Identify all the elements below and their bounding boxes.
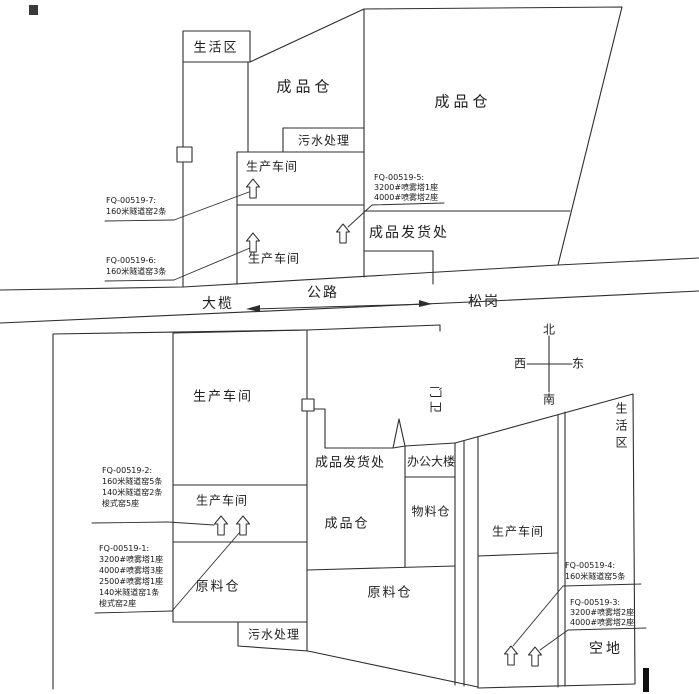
annotation-fq6-title: FQ-00519-6: bbox=[106, 255, 166, 266]
annotation-fq4: FQ-00519-4: 160米隧道窑5条 bbox=[565, 560, 625, 582]
annotation-fq3-line-1: 3200#喷雾塔2座 bbox=[570, 608, 634, 618]
label-upper-workshop-1: 生产车间 bbox=[246, 158, 298, 175]
label-upper-finished-goods-left: 成品仓 bbox=[276, 76, 333, 97]
label-lower-living-area: 生活区 bbox=[613, 402, 630, 453]
road-arrowhead-right bbox=[419, 300, 432, 307]
annotation-fq4-title: FQ-00519-4: bbox=[565, 560, 625, 571]
annotation-fq1-line-1: 3200#喷雾塔1座 bbox=[99, 554, 163, 565]
annotation-fq1-line-5: 梭式窑2座 bbox=[99, 598, 163, 609]
annotation-fq1-line-2: 4000#喷雾塔3座 bbox=[99, 565, 163, 576]
fq6-underline bbox=[105, 280, 174, 281]
label-lower-sewage-treatment: 污水处理 bbox=[248, 626, 300, 643]
annotation-fq2-line-2: 140米隧道窑2条 bbox=[102, 487, 162, 498]
lower-shipping-step bbox=[314, 409, 325, 448]
annotation-fq2-title: FQ-00519-2: bbox=[102, 465, 162, 476]
annotation-fq3-line-2: 4000#喷雾塔2座 bbox=[570, 618, 634, 628]
lower-top-boundary bbox=[53, 325, 440, 334]
annotation-fq3-title: FQ-00519-3: bbox=[570, 598, 634, 608]
arrow-marker-upper-workshop-1 bbox=[247, 179, 260, 198]
road-arrowhead-left bbox=[246, 305, 260, 312]
label-lower-material-warehouse: 物料仓 bbox=[411, 503, 450, 520]
label-road-right-destination: 松岗 bbox=[468, 291, 500, 311]
label-upper-living-area: 生活区 bbox=[193, 37, 238, 56]
annotation-fq3: FQ-00519-3: 3200#喷雾塔2座 4000#喷雾塔2座 bbox=[570, 598, 634, 628]
lower-bottom-slant-right bbox=[478, 684, 635, 688]
lower-gate-triangle bbox=[393, 419, 405, 448]
arrow-marker-bottom-right-1 bbox=[505, 646, 518, 665]
upper-site-outline bbox=[183, 7, 622, 287]
lower-right-boundary bbox=[633, 394, 635, 684]
arrow-marker-lower-workshop-1 bbox=[215, 516, 228, 535]
annotation-fq7: FQ-00519-7: 160米隧道窑2条 bbox=[106, 195, 166, 217]
label-upper-shipping-area: 成品发货处 bbox=[369, 222, 449, 242]
label-compass-north: 北 bbox=[543, 321, 555, 338]
road-top-edge bbox=[0, 258, 699, 290]
fq6-leader bbox=[174, 248, 250, 280]
label-lower-finished-goods: 成品仓 bbox=[324, 513, 369, 532]
road-bottom-edge bbox=[0, 291, 699, 323]
lower-right-workshop-divider bbox=[478, 553, 558, 556]
fq3-leader bbox=[540, 630, 568, 650]
lower-office-top bbox=[405, 443, 455, 446]
label-road-left-destination: 大榄 bbox=[202, 293, 234, 313]
annotation-fq7-line: 160米隧道窑2条 bbox=[106, 206, 166, 217]
fq1-leader bbox=[172, 532, 240, 611]
annotation-fq5-title: FQ-00519-5: bbox=[374, 173, 438, 183]
annotation-fq5-line-2: 4000#喷雾塔2座 bbox=[374, 193, 438, 203]
annotation-fq1-title: FQ-00519-1: bbox=[99, 543, 163, 554]
fq7-leader bbox=[174, 192, 249, 220]
label-gate-house: 门卫 bbox=[428, 386, 445, 416]
annotation-fq4-line: 160米隧道窑5条 bbox=[565, 571, 625, 582]
fq1-underline bbox=[95, 611, 172, 613]
arrow-marker-lower-workshop-2 bbox=[237, 516, 250, 535]
annotation-fq1: FQ-00519-1: 3200#喷雾塔1座 4000#喷雾塔3座 2500#喷… bbox=[99, 543, 163, 609]
label-lower-workshop-right: 生产车间 bbox=[492, 523, 544, 540]
label-compass-south: 南 bbox=[543, 391, 555, 408]
label-upper-workshop-2: 生产车间 bbox=[248, 250, 300, 267]
lower-warehouse-bottom bbox=[307, 566, 455, 570]
lower-wall-notch bbox=[302, 399, 314, 411]
annotation-fq5: FQ-00519-5: 3200#喷雾塔1座 4000#喷雾塔2座 bbox=[374, 173, 438, 203]
label-empty-lot: 空地 bbox=[589, 638, 623, 658]
label-lower-shipping-area: 成品发货处 bbox=[315, 452, 385, 471]
label-lower-workshop-main: 生产车间 bbox=[193, 386, 253, 405]
arrow-marker-bottom-right-2 bbox=[529, 647, 542, 666]
scan-artifact-bottom-right bbox=[643, 668, 649, 692]
label-lower-workshop-small: 生产车间 bbox=[196, 492, 248, 509]
annotation-fq2-line-3: 梭式窑5座 bbox=[102, 498, 162, 509]
annotation-fq6-line: 160米隧道窑3条 bbox=[106, 266, 166, 277]
annotation-fq5-line-1: 3200#喷雾塔1座 bbox=[374, 183, 438, 193]
annotation-fq1-line-4: 140米隧道窑1条 bbox=[99, 587, 163, 598]
label-lower-office-building: 办公大楼 bbox=[407, 453, 455, 470]
scan-artifact-top-left bbox=[29, 5, 38, 15]
lower-bottom-slant-mid bbox=[308, 651, 478, 687]
annotation-fq2: FQ-00519-2: 160米隧道窑5条 140米隧道窑2条 梭式窑5座 bbox=[102, 465, 162, 509]
upper-boundary-notch bbox=[177, 147, 192, 162]
fq2-underline bbox=[92, 522, 168, 523]
annotation-fq1-line-3: 2500#喷雾塔1座 bbox=[99, 576, 163, 587]
fq4-underline bbox=[563, 584, 641, 586]
label-road-highway: 公路 bbox=[307, 282, 339, 302]
fq7-underline bbox=[105, 220, 174, 221]
label-upper-finished-goods-right: 成品仓 bbox=[434, 91, 491, 112]
fq2-leader bbox=[168, 522, 214, 525]
annotation-fq2-line-1: 160米隧道窑5条 bbox=[102, 476, 162, 487]
fq5-underline bbox=[372, 203, 444, 205]
label-compass-west: 西 bbox=[514, 355, 526, 372]
label-upper-sewage-treatment: 污水处理 bbox=[298, 132, 350, 149]
label-lower-raw-material-right: 原料仓 bbox=[367, 582, 412, 601]
label-compass-east: 东 bbox=[572, 355, 584, 372]
annotation-fq6: FQ-00519-6: 160米隧道窑3条 bbox=[106, 255, 166, 277]
arrow-marker-upper-shipping bbox=[337, 224, 350, 243]
annotation-fq7-title: FQ-00519-7: bbox=[106, 195, 166, 206]
fq4-leader bbox=[513, 586, 563, 646]
site-plan-scan: 生活区 成品仓 成品仓 污水处理 生产车间 生产车间 成品发货处 大榄 公路 松… bbox=[0, 0, 699, 694]
label-lower-raw-material-left: 原料仓 bbox=[195, 576, 240, 595]
